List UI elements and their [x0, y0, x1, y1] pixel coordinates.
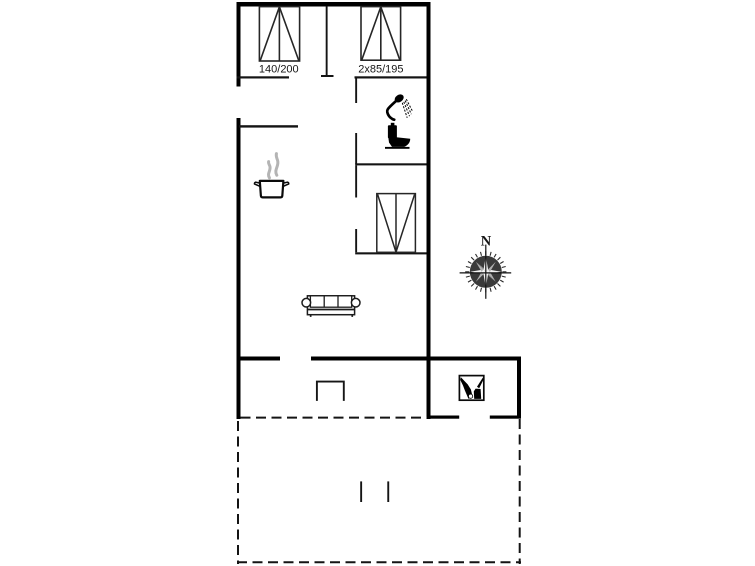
svg-text:N: N — [481, 233, 492, 249]
svg-text:2x85/195: 2x85/195 — [358, 63, 403, 75]
svg-text:140/200: 140/200 — [259, 63, 299, 75]
